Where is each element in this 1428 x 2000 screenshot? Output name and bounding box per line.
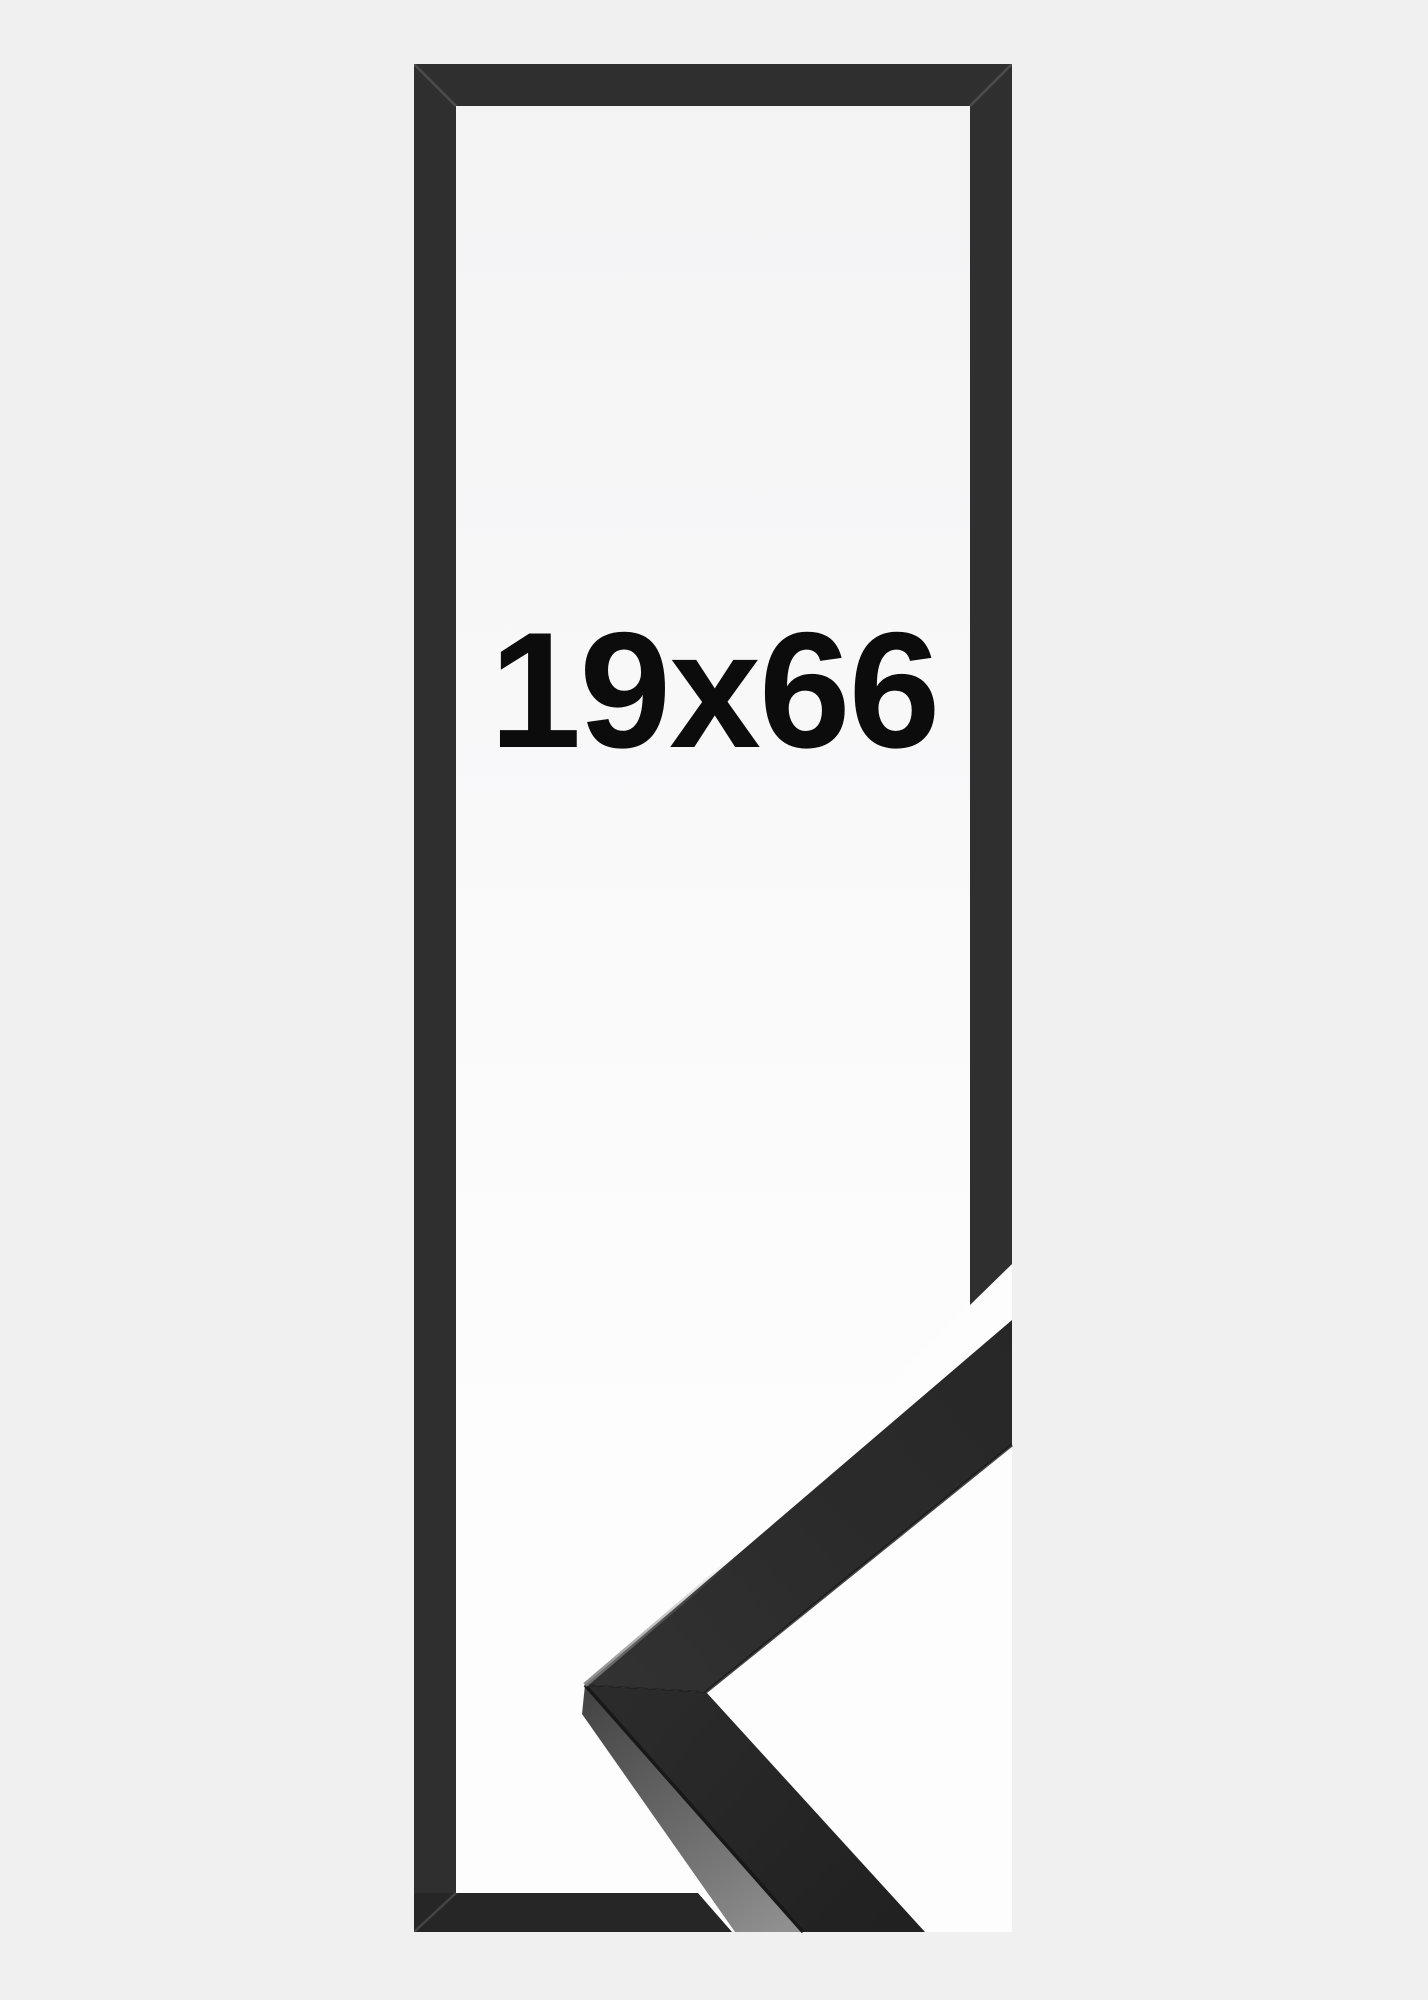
product-image: 19x66	[0, 0, 1428, 2000]
size-label: 19x66	[490, 598, 939, 782]
frame-product-graphic: 19x66	[0, 0, 1428, 2000]
